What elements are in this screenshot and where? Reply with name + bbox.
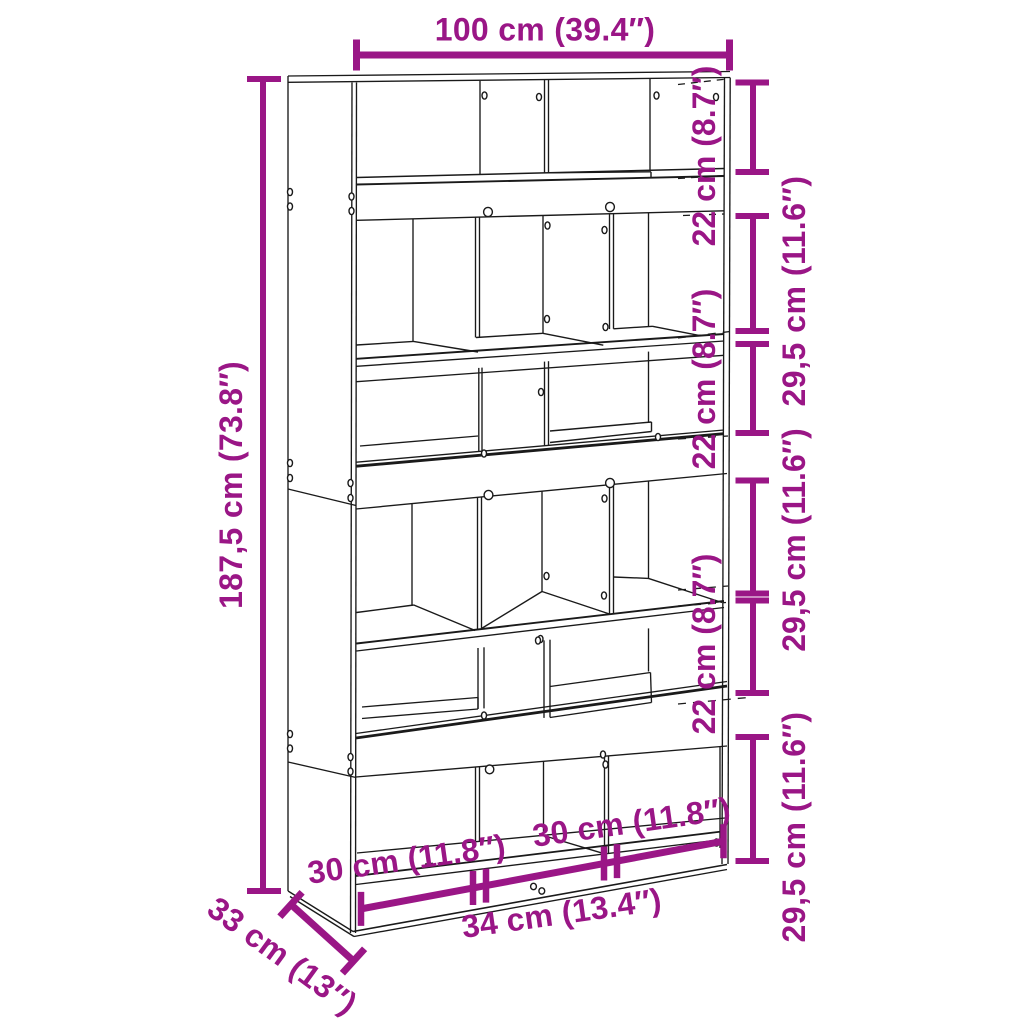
svg-text:22 cm (8.7″): 22 cm (8.7″) (686, 554, 722, 735)
svg-text:22 cm (8.7″): 22 cm (8.7″) (686, 289, 722, 470)
svg-text:22 cm (8.7″): 22 cm (8.7″) (686, 66, 722, 247)
svg-text:29,5 cm (11.6″): 29,5 cm (11.6″) (776, 428, 812, 651)
svg-text:187,5 cm (73.8″): 187,5 cm (73.8″) (213, 361, 249, 609)
svg-text:100 cm (39.4″): 100 cm (39.4″) (435, 12, 656, 48)
svg-text:29,5 cm (11.6″): 29,5 cm (11.6″) (776, 176, 812, 407)
svg-text:29,5 cm (11.6″): 29,5 cm (11.6″) (776, 712, 812, 943)
